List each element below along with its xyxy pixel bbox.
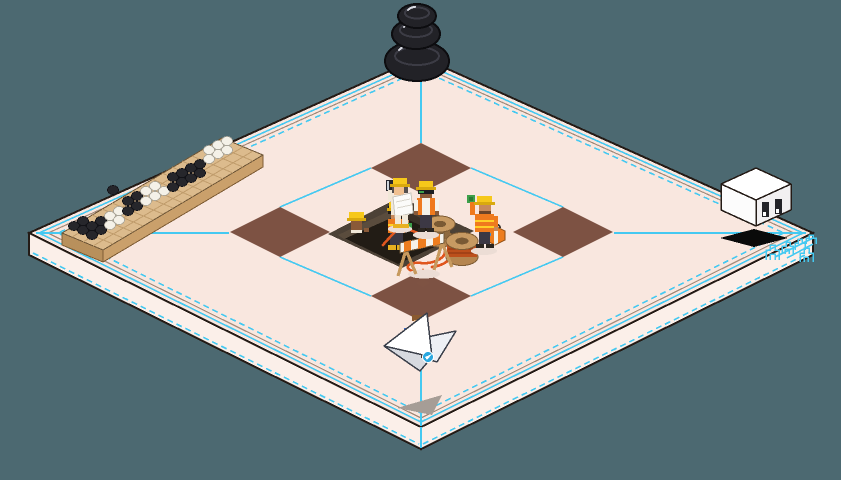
worker-shoe xyxy=(476,244,484,248)
worker-face xyxy=(394,187,404,195)
hard-hat xyxy=(349,212,364,218)
worker-pants xyxy=(420,215,432,228)
zen-stone-stack[interactable] xyxy=(385,4,449,81)
isometric-scene xyxy=(0,0,841,480)
worker-hand xyxy=(414,211,418,215)
worker-shadow xyxy=(413,231,439,239)
worker-shirt xyxy=(351,230,362,233)
worker-arm xyxy=(435,200,439,211)
hard-hat-brim xyxy=(416,187,436,190)
hard-hat-brim xyxy=(347,218,366,221)
worker-leg xyxy=(395,215,401,224)
hard-hat xyxy=(419,181,433,187)
worker-boot xyxy=(401,224,409,228)
go-stone[interactable] xyxy=(114,216,125,225)
smartphone-screen xyxy=(387,181,389,190)
safety-vest xyxy=(475,214,494,232)
worker-arm xyxy=(414,200,418,211)
go-stone[interactable] xyxy=(150,182,161,191)
spool-hole xyxy=(456,238,469,245)
spool-hole xyxy=(434,221,446,227)
worker-leg xyxy=(402,215,408,224)
cube-eye-glint xyxy=(776,209,779,213)
go-stone[interactable] xyxy=(108,186,119,195)
worker-hand xyxy=(364,228,369,232)
worker-boot xyxy=(393,224,401,228)
worker-hand xyxy=(435,211,439,215)
safety-vest xyxy=(430,198,435,215)
worker-pants xyxy=(479,232,490,244)
worker-shoe xyxy=(486,244,494,248)
hard-hat xyxy=(393,178,407,184)
barrier-stripe xyxy=(404,240,411,252)
sunglasses-tint xyxy=(419,191,424,193)
worker-face xyxy=(351,221,362,230)
hard-hat xyxy=(477,196,492,202)
hard-hat-brim xyxy=(474,202,495,205)
vest-stripe xyxy=(475,220,494,222)
green-glove-shade xyxy=(469,197,473,201)
go-stone[interactable] xyxy=(222,137,233,146)
worker-hand xyxy=(494,227,498,231)
worker-boot xyxy=(388,245,396,250)
worker-shoe xyxy=(427,228,434,232)
worker-shadow xyxy=(471,247,497,255)
scene-stage xyxy=(0,0,841,480)
worker-arm xyxy=(494,216,498,227)
barrier-shadow xyxy=(408,270,440,279)
hard-hat-brim xyxy=(390,184,410,187)
worker-hair xyxy=(404,187,408,193)
cube-eye-glint xyxy=(763,212,766,216)
vest-stripe xyxy=(475,226,494,228)
worker-shoe xyxy=(418,228,425,232)
